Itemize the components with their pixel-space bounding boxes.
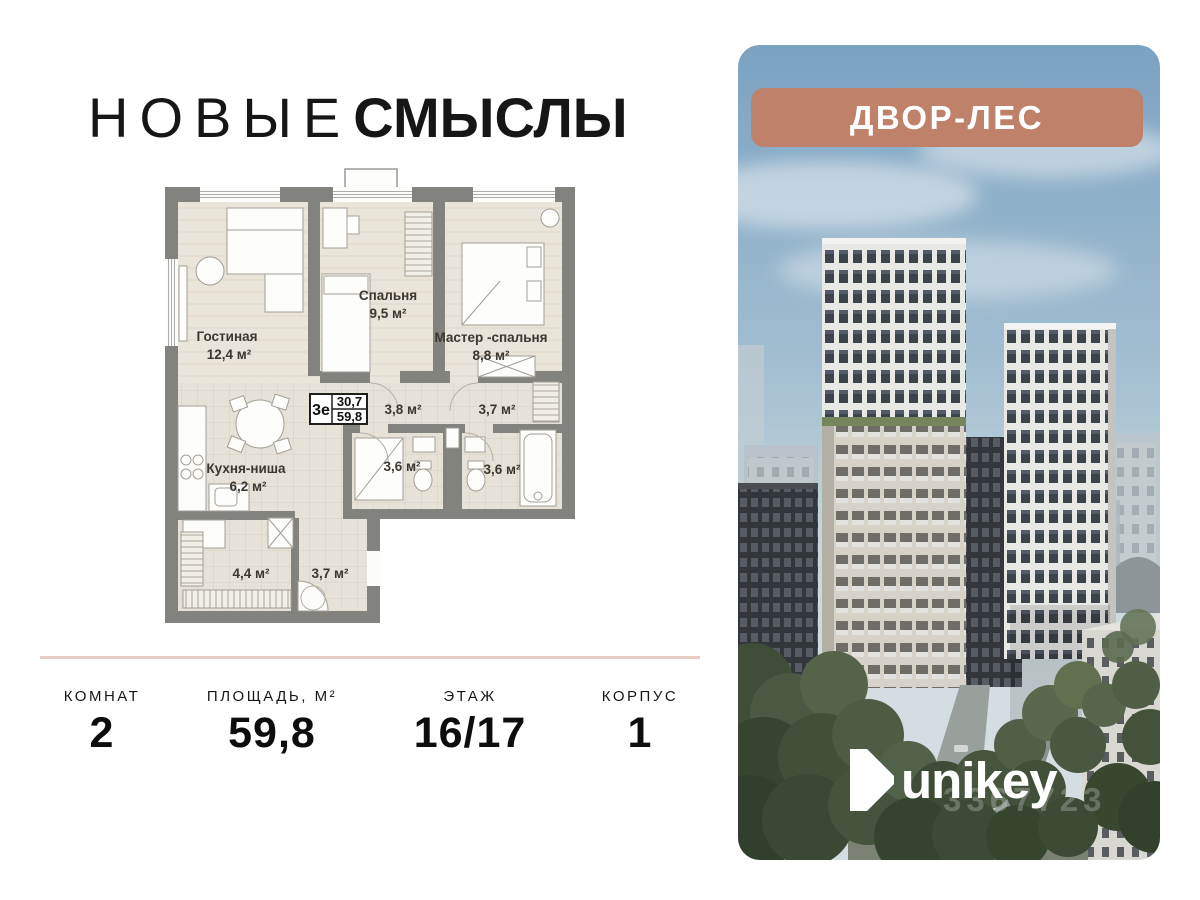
sofa bbox=[227, 208, 303, 274]
label-hall-area: 3,8 м² bbox=[385, 402, 423, 417]
listing-card: НОВЫЕСМЫСЛЫ bbox=[0, 0, 1200, 900]
bathtub bbox=[520, 430, 556, 506]
sink-1 bbox=[413, 437, 435, 452]
divider-line bbox=[40, 656, 700, 659]
desk bbox=[323, 208, 347, 248]
stat-floor-label: ЭТАЖ bbox=[414, 688, 527, 705]
stat-floor-value: 16/17 bbox=[414, 709, 527, 758]
spec-box: 3е 30,7 59,8 bbox=[310, 394, 367, 424]
tv-console bbox=[179, 266, 187, 341]
unikey-arrow-icon bbox=[850, 749, 894, 811]
label-bath1-area: 3,6 м² bbox=[384, 459, 422, 474]
label-living-area: 12,4 м² bbox=[207, 347, 252, 362]
toilet-2 bbox=[467, 469, 485, 491]
stat-building-label: КОРПУС bbox=[602, 688, 678, 705]
kitchen-counter bbox=[178, 406, 206, 511]
label-bedroom-area: 9,5 м² bbox=[370, 306, 408, 321]
stat-rooms-value: 2 bbox=[64, 709, 141, 758]
balcony-outline bbox=[345, 169, 397, 188]
brand-logo: НОВЫЕСМЫСЛЫ bbox=[88, 90, 628, 146]
stat-area: ПЛОЩАДЬ, М² 59,8 bbox=[207, 688, 337, 758]
developer-logo: unikey bbox=[850, 749, 1057, 811]
label-hallway-area: 3,7 м² bbox=[312, 566, 350, 581]
city-render bbox=[738, 45, 1160, 860]
duct bbox=[446, 428, 459, 448]
wardrobe bbox=[405, 212, 432, 276]
label-master-name: Мастер -спальня bbox=[434, 330, 547, 345]
brand-title-light: НОВЫЕ bbox=[88, 86, 351, 149]
stat-floor: ЭТАЖ 16/17 bbox=[414, 688, 527, 758]
floor-plan: 3е 30,7 59,8 Гостиная 12,4 м² Спальня 9,… bbox=[165, 166, 575, 628]
label-bath2-area: 3,6 м² bbox=[484, 462, 522, 477]
project-badge: ДВОР-ЛЕС bbox=[751, 88, 1143, 147]
stat-building-value: 1 bbox=[602, 709, 678, 758]
stat-rooms-label: КОМНАТ bbox=[64, 688, 141, 705]
chair bbox=[541, 209, 559, 227]
floor-plan-svg: 3е 30,7 59,8 Гостиная 12,4 м² Спальня 9,… bbox=[165, 166, 575, 628]
closet-rail bbox=[183, 590, 291, 608]
coffee-table bbox=[196, 257, 224, 285]
stat-area-label: ПЛОЩАДЬ, М² bbox=[207, 688, 337, 705]
closet-shelves bbox=[181, 532, 203, 586]
developer-logo-text: unikey bbox=[901, 755, 1057, 806]
stat-area-value: 59,8 bbox=[207, 709, 337, 758]
label-closet-area: 4,4 м² bbox=[233, 566, 271, 581]
label-master-area: 8,8 м² bbox=[473, 348, 511, 363]
label-living-name: Гостиная bbox=[196, 329, 257, 344]
hall-wardrobe bbox=[533, 382, 559, 422]
project-badge-label: ДВОР-ЛЕС bbox=[850, 99, 1044, 137]
render-poster: ДВОР-ЛЕС 3367723 unikey bbox=[738, 45, 1160, 860]
stat-rooms: КОМНАТ 2 bbox=[64, 688, 141, 758]
label-kitchen-name: Кухня-ниша bbox=[206, 461, 286, 476]
label-bedroom-name: Спальня bbox=[359, 288, 417, 303]
spec-living-area: 30,7 bbox=[337, 394, 362, 409]
spec-type: 3е bbox=[312, 402, 330, 419]
brand-title-bold: СМЫСЛЫ bbox=[353, 86, 627, 149]
label-wardrobe-top-area: 3,7 м² bbox=[479, 402, 517, 417]
stat-building: КОРПУС 1 bbox=[602, 688, 678, 758]
spec-total-area: 59,8 bbox=[337, 409, 362, 424]
tower-left bbox=[822, 238, 966, 688]
label-kitchen-area: 6,2 м² bbox=[230, 479, 268, 494]
